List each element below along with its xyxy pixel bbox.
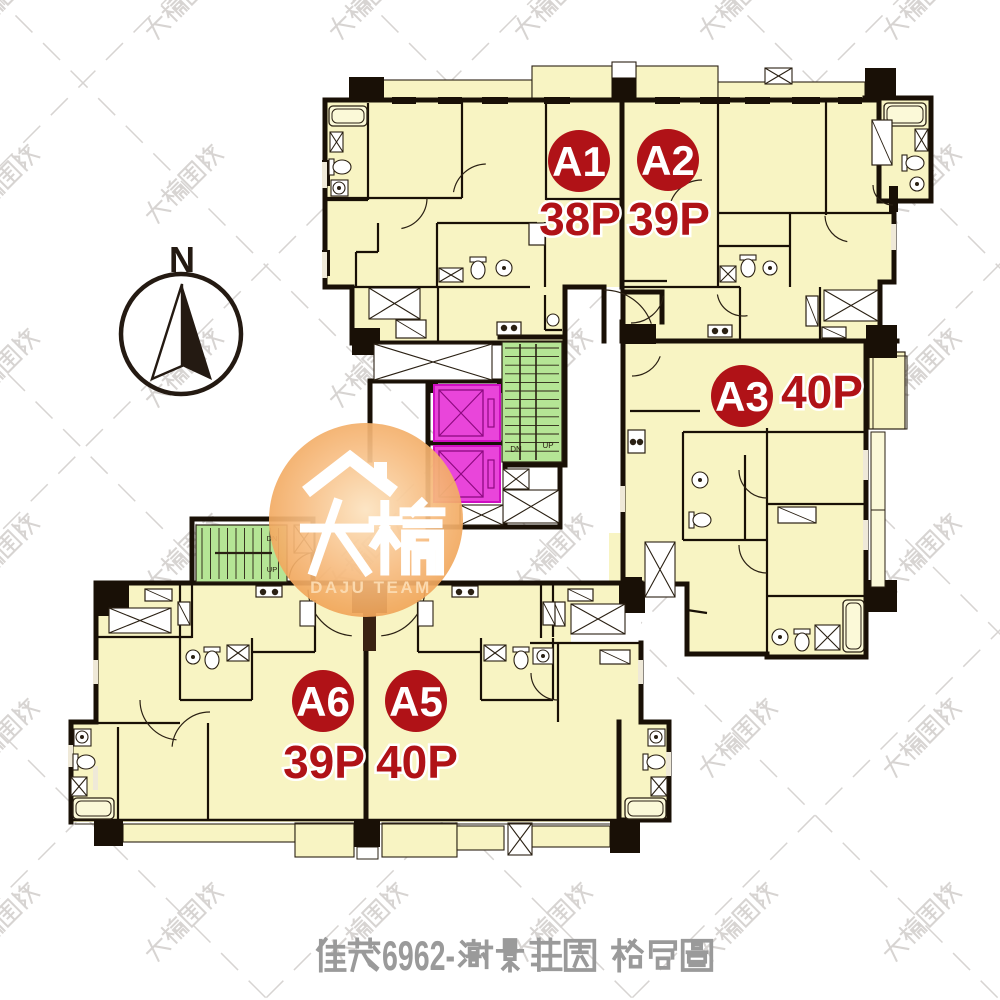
svg-text:38P: 38P — [539, 193, 621, 245]
svg-text:DAJU TEAM: DAJU TEAM — [310, 578, 432, 597]
svg-text:40P: 40P — [781, 366, 863, 418]
svg-text:UP: UP — [542, 441, 553, 450]
svg-text:A3: A3 — [715, 373, 769, 420]
svg-text:A1: A1 — [552, 138, 606, 185]
svg-text:A5: A5 — [389, 678, 443, 725]
svg-text:40P: 40P — [376, 736, 458, 788]
svg-text:UP: UP — [267, 565, 277, 574]
svg-text:N: N — [169, 239, 195, 280]
svg-text:A6: A6 — [296, 678, 350, 725]
svg-text:DN: DN — [510, 445, 522, 454]
svg-text:A2: A2 — [641, 137, 695, 184]
svg-text:39P: 39P — [283, 736, 365, 788]
svg-text:39P: 39P — [628, 193, 710, 245]
svg-text:6962-: 6962- — [382, 932, 455, 979]
